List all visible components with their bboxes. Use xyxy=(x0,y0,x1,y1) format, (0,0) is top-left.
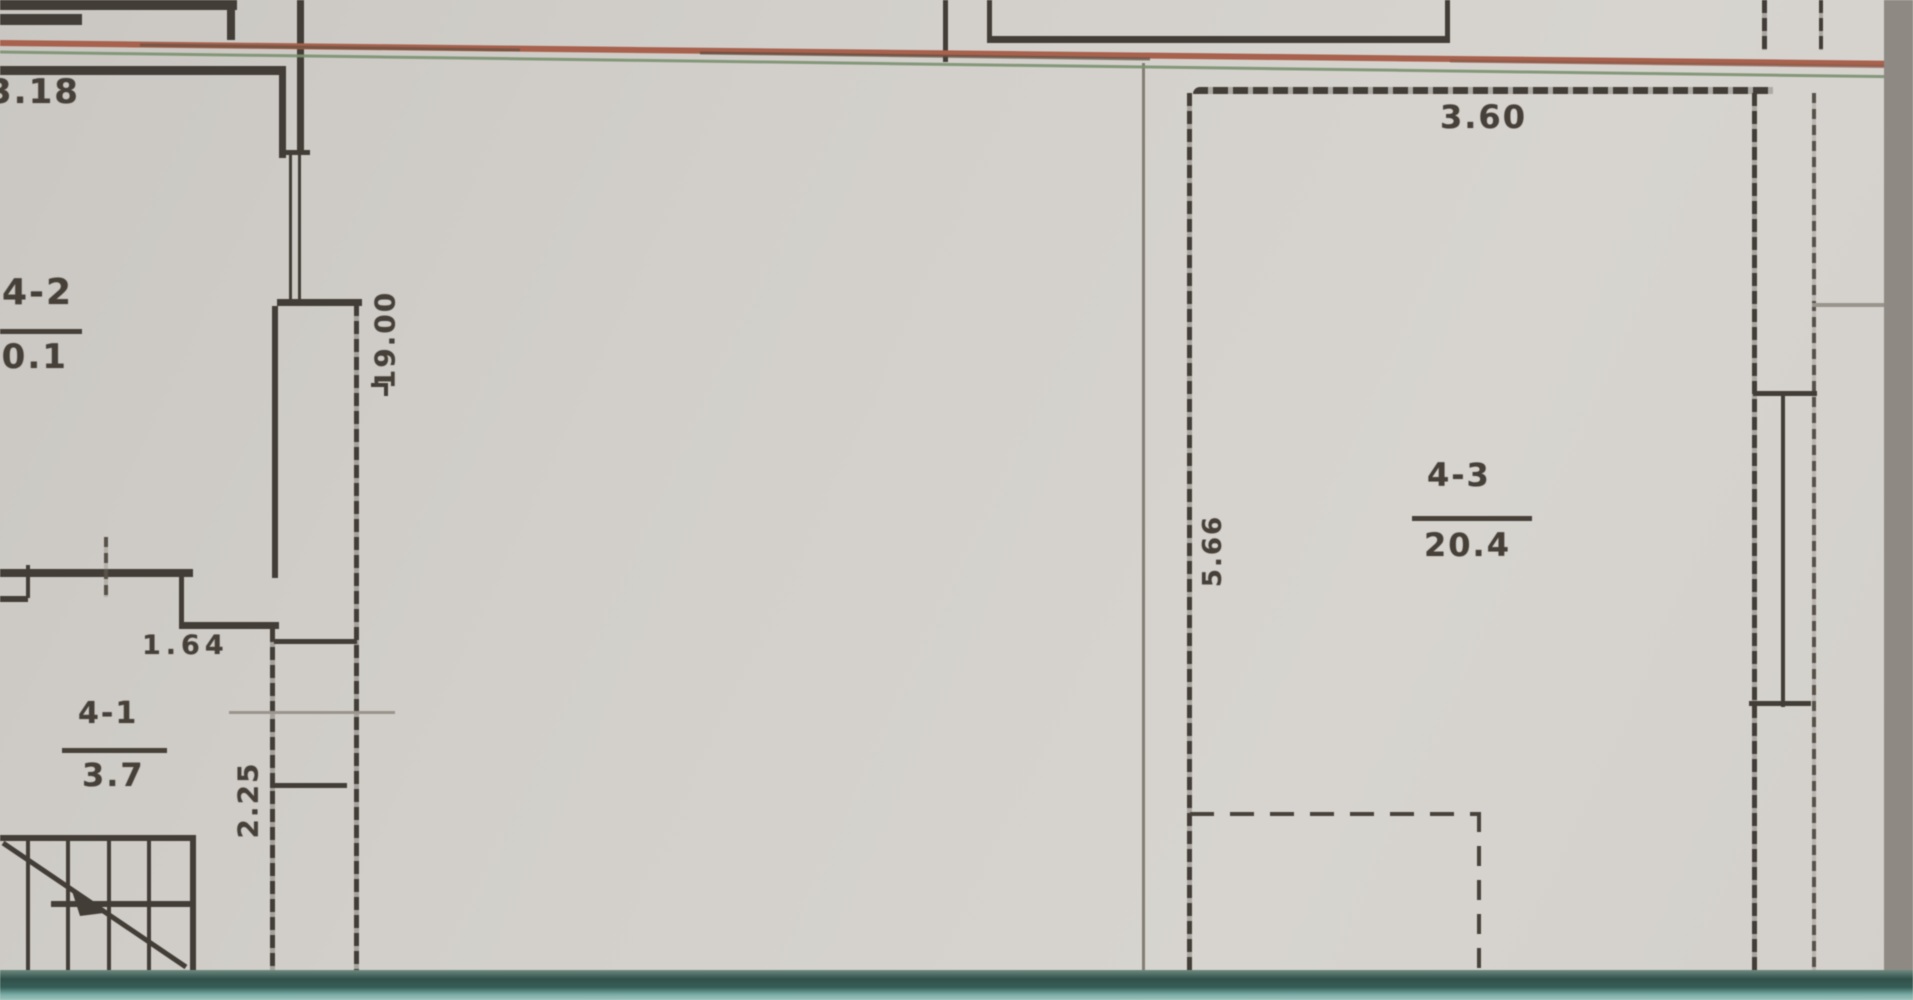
dimension-label: 3.18 xyxy=(0,72,80,112)
room-area: 20.4 xyxy=(1424,526,1511,564)
fraction-bar xyxy=(0,329,82,334)
dimension-label: 5.66 xyxy=(1198,515,1228,587)
dimension-label: 2.25 xyxy=(232,761,265,838)
scan-edge-band xyxy=(1884,0,1913,1000)
fraction-bar xyxy=(62,748,167,753)
room-number: 4-3 xyxy=(1427,456,1491,494)
room-number: 4-1 xyxy=(78,696,138,731)
dimension-label: 1.64 xyxy=(142,630,229,661)
dimension-label: 3.60 xyxy=(1440,98,1527,136)
floor-plan-scan-layer: 3.18 4-2 20.1 19.00 1.64 4-1 3.7 2.25 3.… xyxy=(0,0,1913,1000)
fraction-bar xyxy=(1412,516,1532,521)
room-number: 4-2 xyxy=(2,272,73,313)
stair-direction-line xyxy=(3,843,186,967)
bottom-border-band xyxy=(0,970,1913,1000)
scan-lines xyxy=(0,0,1913,1000)
floor-plan: 3.18 4-2 20.1 19.00 1.64 4-1 3.7 2.25 3.… xyxy=(0,0,1913,1000)
stair-arrowhead xyxy=(72,891,104,916)
room-area: 3.7 xyxy=(82,756,145,794)
dimension-label: 19.00 xyxy=(369,291,402,390)
room-area: 20.1 xyxy=(0,337,68,377)
